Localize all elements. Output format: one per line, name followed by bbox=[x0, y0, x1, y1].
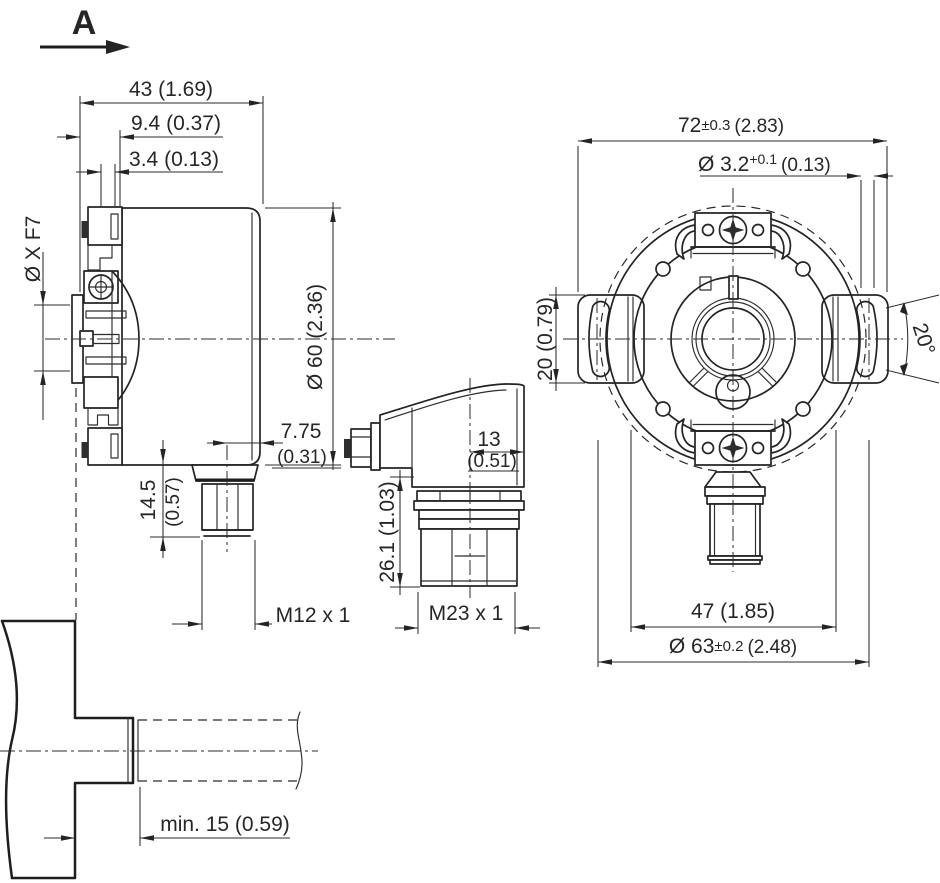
dim-m23-thread: M23 x 1 bbox=[429, 602, 504, 625]
view-direction-arrow: A bbox=[40, 4, 130, 54]
dim-connector-height-inch: (0.57) bbox=[163, 477, 184, 527]
dim-m23-width-inch: (0.51) bbox=[467, 451, 517, 472]
dim-slot-hole-inch: (0.13) bbox=[781, 155, 831, 176]
dim-tab-height: 20 (0.79) bbox=[534, 297, 557, 381]
dim-connector-height-mm: 14.5 bbox=[137, 480, 160, 521]
dim-slot-hole: Ø 3.2+0.1(0.13) bbox=[698, 151, 831, 176]
front-view-dimensions: 72±0.3(2.83) Ø 3.2+0.1(0.13) 20 (0.79) 2… bbox=[534, 114, 939, 667]
technical-drawing-page: A bbox=[0, 0, 940, 883]
wall-break-edge bbox=[2, 621, 17, 878]
m23-coupling-nut bbox=[421, 529, 517, 586]
dim-shaft-bore: Ø X F7 bbox=[22, 216, 45, 283]
m12-connector bbox=[192, 465, 258, 536]
dim-housing-depth: 43 (1.69) bbox=[129, 78, 213, 101]
dim-mounting-width: 72±0.3(2.83) bbox=[678, 114, 784, 137]
dim-outer-diameter-inch: (2.48) bbox=[747, 637, 797, 658]
dim-connector-offset-inch: (0.31) bbox=[277, 447, 327, 468]
dim-slot-angle: 20° bbox=[908, 320, 940, 357]
dim-step1: 9.4 (0.37) bbox=[131, 112, 221, 135]
dim-slot-hole-tolerance: +0.1 bbox=[749, 151, 777, 167]
dim-mounting-width-tolerance: ±0.3 bbox=[701, 117, 730, 134]
dim-housing-diameter: Ø 60 (2.36) bbox=[304, 284, 327, 390]
dim-clamp-spacing: 47 (1.85) bbox=[691, 600, 775, 623]
dim-step2: 3.4 (0.13) bbox=[129, 148, 219, 171]
dim-outer-diameter-value: Ø 63 bbox=[669, 635, 715, 658]
housing-body bbox=[122, 208, 260, 465]
dim-connector-offset-mm: 7.75 bbox=[281, 420, 322, 443]
dim-outer-diameter: Ø 63±0.2(2.48) bbox=[669, 635, 797, 658]
dim-m23-height: 26.1 (1.03) bbox=[376, 481, 399, 583]
shaft-mounting-detail: min. 15 (0.59) bbox=[0, 621, 318, 878]
front-view-connector bbox=[705, 472, 765, 564]
view-label: A bbox=[72, 4, 97, 42]
encoder-dimensional-drawing: A bbox=[0, 0, 940, 883]
mount-dimensions: min. 15 (0.59) bbox=[44, 787, 290, 846]
dim-mounting-width-inch: (2.83) bbox=[734, 116, 784, 137]
arrow-head-icon bbox=[106, 40, 130, 54]
dim-m23-width-mm: 13 bbox=[477, 428, 500, 451]
front-view: 72±0.3(2.83) Ø 3.2+0.1(0.13) 20 (0.79) 2… bbox=[534, 114, 939, 667]
dim-min-insertion: min. 15 (0.59) bbox=[160, 813, 290, 836]
side-view: 43 (1.69) 9.4 (0.37) 3.4 (0.13) Ø X F7 bbox=[22, 78, 395, 630]
m23-connector-view: 13 (0.51) 26.1 (1.03) M23 x 1 bbox=[344, 378, 540, 634]
dim-m12-thread: M12 x 1 bbox=[276, 604, 351, 627]
dim-mounting-width-value: 72 bbox=[678, 114, 701, 137]
dim-slot-hole-value: Ø 3.2 bbox=[698, 153, 749, 176]
dim-outer-diameter-tolerance: ±0.2 bbox=[714, 638, 743, 655]
